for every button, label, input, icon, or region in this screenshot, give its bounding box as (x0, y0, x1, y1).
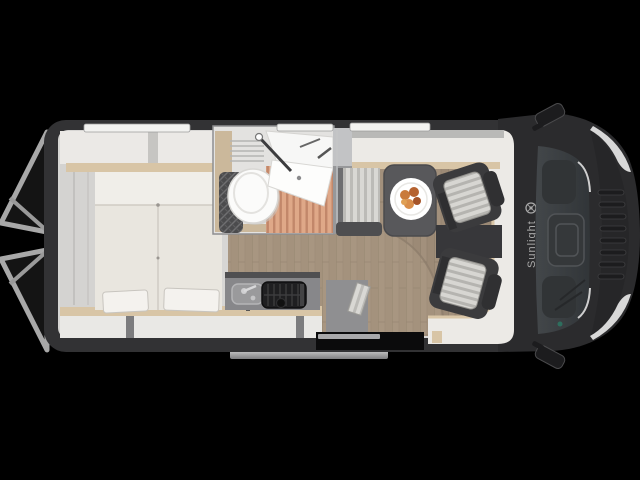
kitchen (225, 272, 320, 310)
mattress-button (157, 257, 160, 260)
entry-bench (326, 280, 370, 334)
soap-knob (251, 296, 256, 301)
entry-door-opening (316, 331, 442, 350)
floorplan-stage: Sunlight (0, 0, 640, 480)
kitchen-sink (232, 284, 263, 304)
shower-door-pivot (256, 134, 263, 141)
cabinet-fronts (60, 314, 322, 338)
window-strip (350, 123, 430, 131)
floorplan-render: Sunlight (0, 0, 640, 480)
dashboard-blob (542, 276, 576, 318)
entry-inner-step (318, 334, 380, 339)
bench-backrest (336, 222, 382, 236)
sink-drain (297, 176, 301, 180)
overhead-cabinets (60, 131, 222, 164)
stove-burner (277, 299, 286, 308)
window-strip (277, 124, 333, 131)
food-plate (390, 178, 432, 220)
overhead-divider (148, 131, 158, 164)
dash-detail (558, 322, 563, 327)
cabinet-divider (126, 314, 134, 338)
cab-windshield (536, 146, 591, 334)
cabinet-divider (296, 314, 304, 338)
rear-bed-area (60, 131, 222, 313)
bed-pillow-right (164, 288, 220, 312)
bathroom (213, 126, 334, 234)
window-strip (84, 124, 190, 132)
top-wood-shelf (66, 163, 220, 172)
bed-head-section (95, 172, 222, 205)
dinette-bench (340, 168, 380, 225)
entry-wood-trim (432, 331, 442, 343)
dashboard-blob (542, 160, 576, 204)
mattress-button (156, 203, 160, 207)
bed-pillow-left (103, 290, 149, 313)
stove-handle (300, 284, 304, 306)
bench-side (338, 168, 343, 225)
